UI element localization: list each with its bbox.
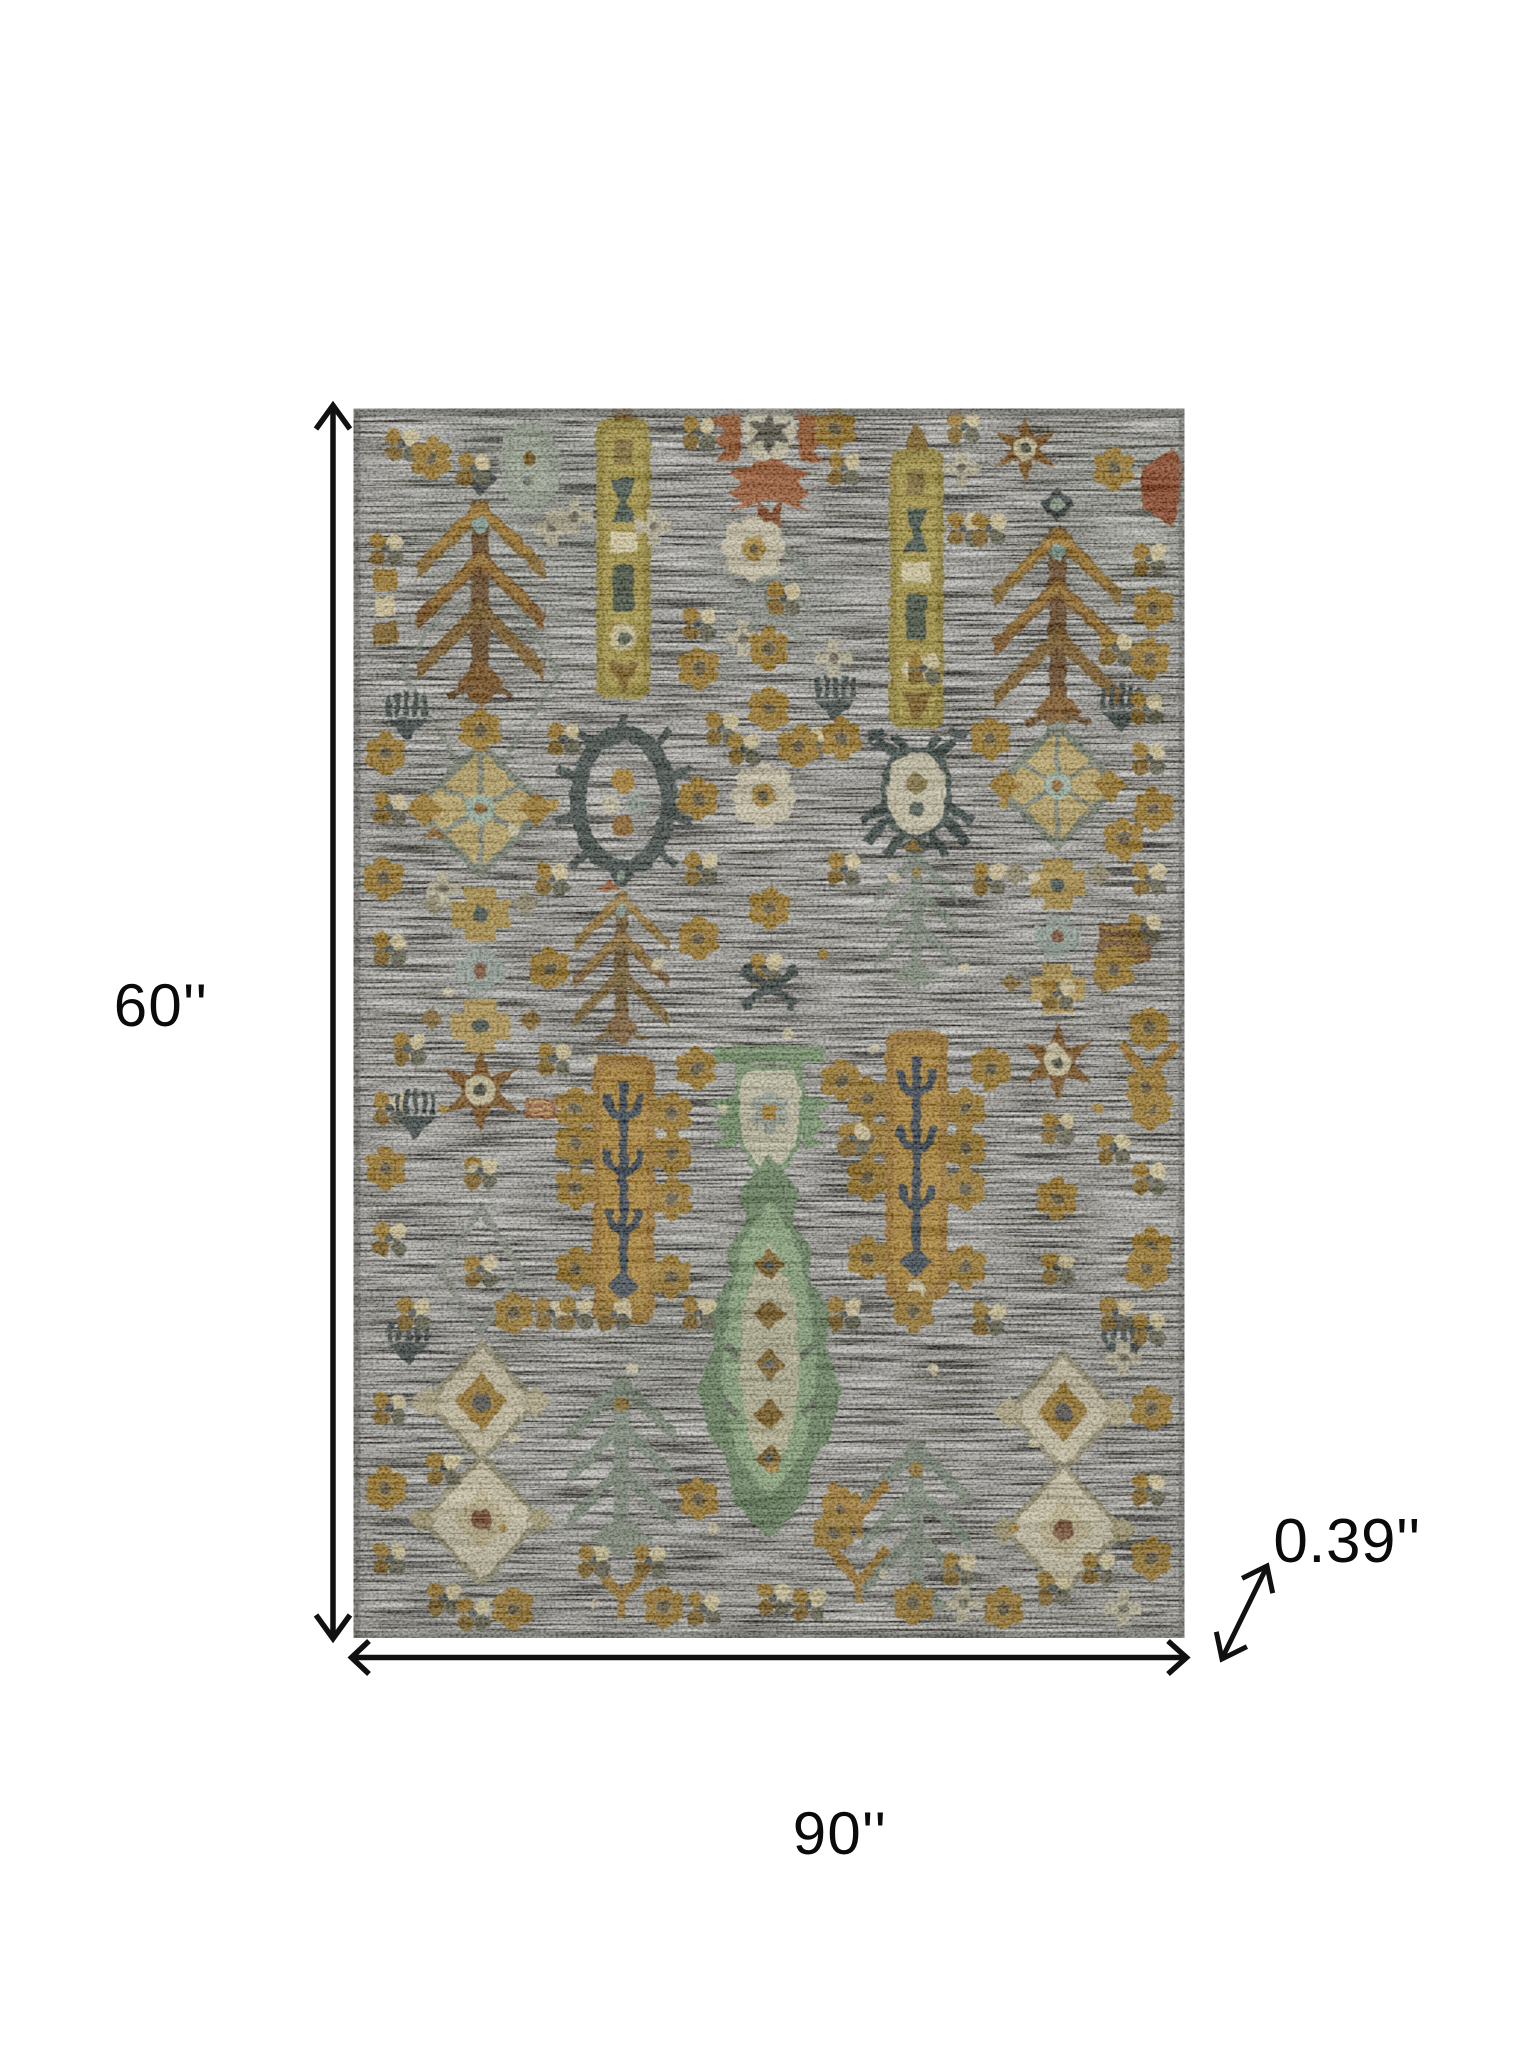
svg-text:90'': 90''	[793, 1800, 887, 1867]
svg-text:60'': 60''	[114, 972, 208, 1039]
svg-text:0.39'': 0.39''	[1273, 1507, 1420, 1576]
